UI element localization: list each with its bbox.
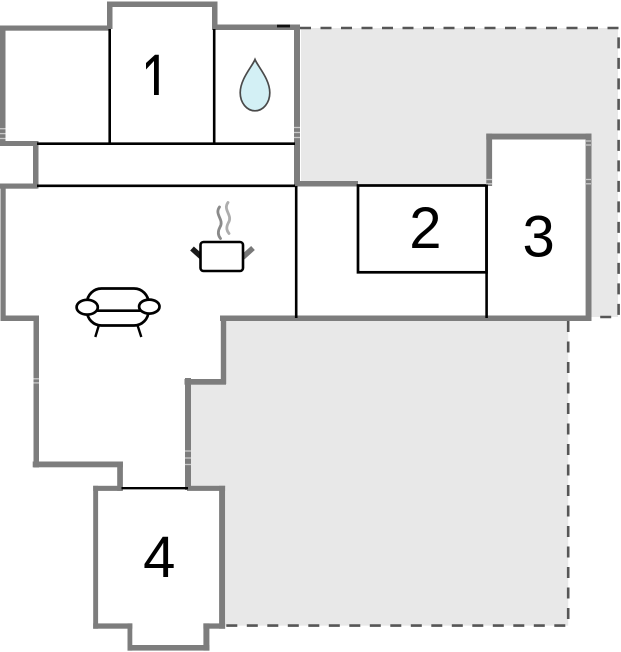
svg-text:4: 4	[143, 525, 175, 590]
svg-text:3: 3	[522, 205, 554, 270]
svg-text:2: 2	[409, 196, 441, 261]
